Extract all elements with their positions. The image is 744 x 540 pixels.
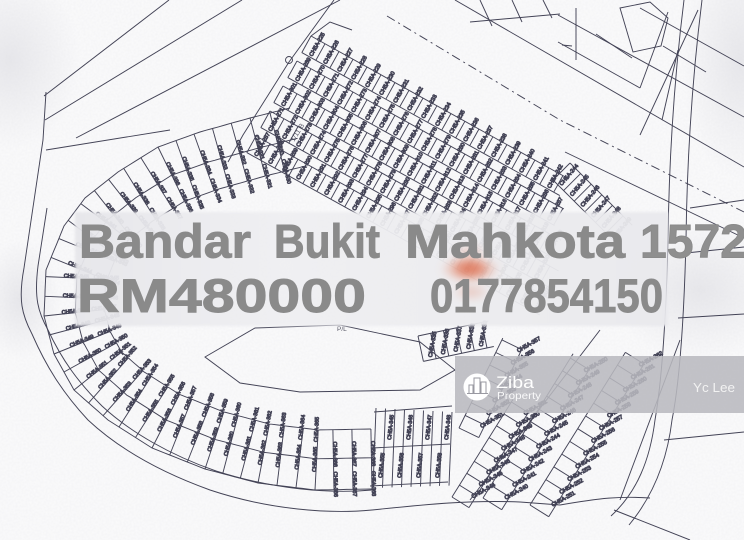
svg-text:Bandar: Bandar [79,216,251,269]
svg-text:Yc Lee: Yc Lee [693,380,735,395]
svg-text:CH5A-367: CH5A-367 [350,441,356,466]
svg-text:Property: Property [497,390,542,402]
svg-text:1572: 1572 [640,216,744,269]
svg-text:Mahkota: Mahkota [405,216,626,269]
svg-text:CH5A-367: CH5A-367 [351,471,357,496]
svg-text:RM480000: RM480000 [77,270,366,323]
svg-text:CH5A-366: CH5A-366 [331,442,337,467]
svg-text:CH5A-366: CH5A-366 [332,472,338,497]
svg-text:0177854150: 0177854150 [430,270,663,323]
svg-text:Bukit: Bukit [274,216,380,269]
svg-text:P/L: P/L [337,326,347,333]
